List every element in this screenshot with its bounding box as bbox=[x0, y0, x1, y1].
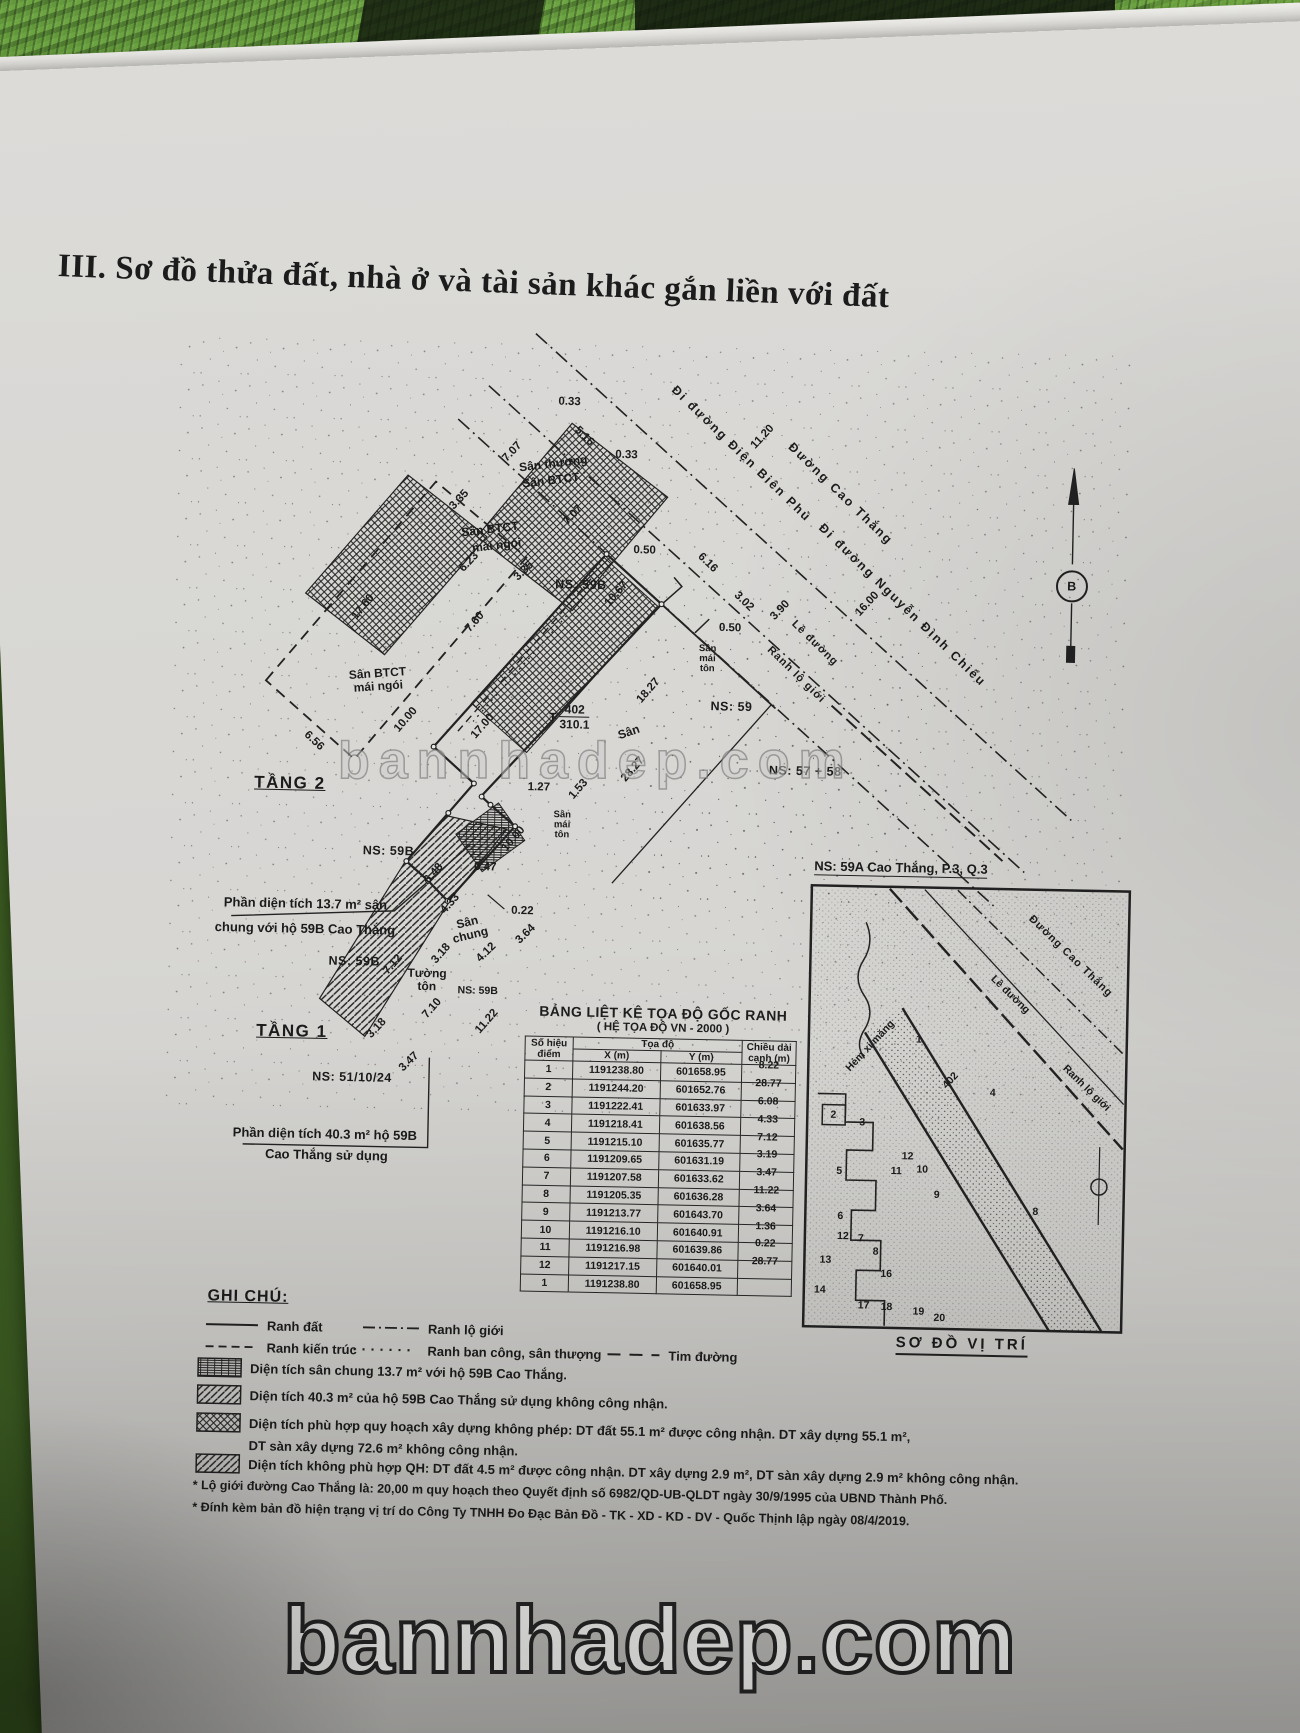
map-label: 19 bbox=[912, 1306, 924, 1318]
diagram-label: Sân mái tôn bbox=[698, 644, 716, 674]
table-cell: 11 bbox=[521, 1238, 569, 1257]
diagram-label: 0.22 bbox=[511, 905, 534, 918]
coordinate-table: Số hiệu điểm Tọa độ Chiều dài cạnh (m) X… bbox=[520, 1036, 797, 1298]
table-cell bbox=[737, 1278, 791, 1297]
table-cell: 1191238.80 bbox=[572, 1061, 660, 1081]
diagram-label: Tường tôn bbox=[407, 967, 447, 995]
legend-swatch-crosshatch bbox=[196, 1412, 241, 1433]
table-cell: 601640.01 bbox=[656, 1258, 738, 1277]
legend-swatch-longdash bbox=[607, 1349, 659, 1360]
table-cell: 601636.28 bbox=[657, 1187, 739, 1206]
parcel-number-fraction: 402 310.1 bbox=[559, 702, 590, 732]
legend-swatch-hatch2 bbox=[195, 1453, 240, 1474]
table-cell: 1191244.20 bbox=[572, 1079, 660, 1099]
table-cell: 12 bbox=[521, 1256, 569, 1275]
table-cell: 1191216.10 bbox=[569, 1221, 657, 1241]
table-cell: 2 bbox=[524, 1078, 572, 1097]
table-cell: 5 bbox=[523, 1131, 571, 1150]
table-cell: 1191238.80 bbox=[568, 1275, 656, 1295]
legend-label: Ranh đất bbox=[267, 1318, 323, 1334]
parcel-number-prefix: T bbox=[549, 709, 557, 723]
table-cell: 601643.70 bbox=[657, 1205, 739, 1224]
table-cell: 9 bbox=[522, 1202, 570, 1221]
map-label: 3 bbox=[859, 1117, 865, 1129]
map-label: 6 bbox=[837, 1211, 843, 1223]
map-label: 11 bbox=[891, 1166, 902, 1178]
table-cell: 1191217.15 bbox=[569, 1257, 657, 1277]
table-cell: 1 bbox=[525, 1060, 573, 1079]
map-label: 4 bbox=[990, 1088, 996, 1100]
north-arrow-tail bbox=[1071, 603, 1072, 646]
diagram-label: NS: 59 bbox=[710, 699, 752, 714]
watermark-bottom: bannhadep.com bbox=[283, 1586, 1017, 1694]
legend-label: Tim đường bbox=[668, 1348, 737, 1364]
map-label: 14 bbox=[814, 1284, 826, 1296]
photo-of-cadastral-document: III. Sơ đồ thửa đất, nhà ở và tài sản kh… bbox=[0, 0, 1300, 1733]
diagram-label: 0.33 bbox=[615, 449, 638, 462]
map-label: 1 bbox=[916, 1034, 922, 1046]
table-cell: 601633.97 bbox=[659, 1098, 741, 1117]
legend-label: Ranh lộ giới bbox=[428, 1322, 504, 1339]
legend-swatch-grid bbox=[197, 1357, 242, 1378]
diagram-label: B bbox=[1067, 579, 1077, 593]
table-cell: 1 bbox=[520, 1274, 568, 1293]
legend-heading: GHI CHÚ: bbox=[207, 1287, 288, 1307]
legend-label: Ranh kiến trúc bbox=[266, 1340, 357, 1357]
map-label: 20 bbox=[933, 1313, 945, 1325]
table-cell: 1191207.58 bbox=[570, 1168, 658, 1188]
col-point-header: Số hiệu điểm bbox=[525, 1036, 573, 1061]
diagram-label: 0.47 bbox=[474, 861, 497, 874]
watermark-center: bannhadep.com bbox=[338, 731, 854, 791]
map-label: 12 bbox=[902, 1151, 914, 1163]
diagram-label: 0.50 bbox=[633, 544, 656, 557]
diagram-label: 0.33 bbox=[558, 396, 581, 409]
map-label: 16 bbox=[880, 1269, 892, 1281]
map-label: 8 bbox=[1032, 1207, 1038, 1219]
table-cell: 28.77 bbox=[738, 1260, 792, 1279]
table-cell: 601658.95 bbox=[660, 1063, 742, 1082]
diagram-label: NS: 59B bbox=[328, 954, 380, 969]
table-cell: 4 bbox=[523, 1113, 571, 1132]
diagram-label: NS: 59B bbox=[457, 985, 497, 998]
diagram-label: Sân mái tôn bbox=[553, 810, 571, 840]
table-cell: 601638.56 bbox=[659, 1116, 741, 1135]
table-cell: 1191216.98 bbox=[569, 1239, 657, 1259]
table-cell: 10 bbox=[521, 1220, 569, 1239]
legend-swatch-dotted bbox=[353, 1344, 415, 1355]
table-cell: 3 bbox=[524, 1096, 572, 1115]
legend-swatch-dashed bbox=[205, 1341, 257, 1352]
location-map-texture bbox=[805, 887, 1128, 1330]
table-cell: 1191218.41 bbox=[571, 1114, 659, 1134]
map-label: 18 bbox=[881, 1302, 893, 1314]
diagram-label: NS: 51/10/24 bbox=[312, 1069, 392, 1085]
map-label: 5 bbox=[836, 1166, 842, 1178]
table-cell: 6 bbox=[523, 1149, 571, 1168]
map-label: 12 bbox=[837, 1231, 849, 1243]
table-cell: 7 bbox=[522, 1167, 570, 1186]
table-cell: 1191215.10 bbox=[571, 1132, 659, 1152]
map-label: 8 bbox=[873, 1247, 879, 1259]
map-label: 13 bbox=[819, 1255, 831, 1267]
legend-swatch-hatch bbox=[196, 1384, 241, 1405]
table-cell: 1191209.65 bbox=[571, 1150, 659, 1170]
parcel-number: T 402 310.1 bbox=[549, 702, 590, 732]
map-label: 17 bbox=[858, 1300, 870, 1312]
table-cell: 8 bbox=[522, 1185, 570, 1204]
north-arrow-base bbox=[1066, 646, 1074, 662]
table-cell: 601658.95 bbox=[656, 1276, 738, 1295]
scanned-document-content: III. Sơ đồ thửa đất, nhà ở và tài sản kh… bbox=[0, 0, 1300, 1733]
table-cell: 1191205.35 bbox=[570, 1186, 658, 1206]
table-cell: 601633.62 bbox=[658, 1170, 740, 1189]
legend-swatch-solid bbox=[206, 1319, 258, 1330]
map-caption: SƠ ĐỒ VỊ TRÍ bbox=[896, 1335, 1029, 1357]
map-label: 7 bbox=[858, 1233, 864, 1245]
table-cell: 601631.19 bbox=[658, 1152, 740, 1171]
map-label: 9 bbox=[934, 1190, 940, 1202]
table-cell: 601635.77 bbox=[659, 1134, 741, 1153]
diagram-label: TẦNG 2 bbox=[254, 773, 326, 793]
diagram-label: Cao Thắng sử dụng bbox=[265, 1147, 388, 1164]
diagram-label: NS: 59B bbox=[555, 577, 607, 592]
table-cell: 601652.76 bbox=[660, 1081, 742, 1100]
table-cell: 1191213.77 bbox=[570, 1203, 658, 1223]
diagram-label: 0.50 bbox=[719, 622, 742, 635]
table-cell: 601640.91 bbox=[657, 1223, 739, 1242]
map-label: 10 bbox=[916, 1165, 928, 1177]
coordinate-table-block: BẢNG LIỆT KÊ TỌA ĐỘ GỐC RANH ( HỆ TỌA ĐỘ… bbox=[520, 1003, 802, 1298]
diagram-label: Sân BTCT mái ngói bbox=[348, 665, 407, 696]
table-cell: 1191222.41 bbox=[572, 1097, 660, 1117]
map-label: 2 bbox=[830, 1110, 836, 1122]
diagram-label: TẦNG 1 bbox=[256, 1021, 328, 1041]
legend-swatch-dashdot bbox=[363, 1322, 419, 1333]
table-cell: 601639.86 bbox=[656, 1241, 738, 1260]
diagram-label: NS: 59B bbox=[363, 843, 415, 858]
